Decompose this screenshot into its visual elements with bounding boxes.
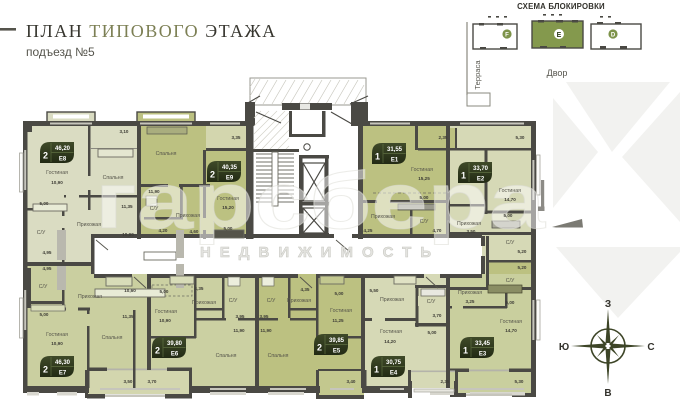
svg-text:5,00: 5,00: [335, 291, 344, 296]
svg-text:3,70: 3,70: [433, 313, 442, 318]
svg-text:2,35: 2,35: [441, 379, 450, 384]
svg-text:39,85: 39,85: [329, 338, 345, 344]
svg-text:Прихожая: Прихожая: [287, 298, 311, 304]
svg-text:D: D: [611, 33, 616, 39]
svg-text:Двор: Двор: [547, 68, 568, 78]
svg-text:Гостиная: Гостиная: [46, 332, 68, 338]
svg-text:5,20: 5,20: [518, 249, 527, 254]
svg-text:С/У: С/У: [427, 299, 436, 305]
svg-text:Прихожая: Прихожая: [78, 294, 102, 300]
svg-text:14,20: 14,20: [384, 339, 396, 344]
svg-text:Терраса: Терраса: [473, 60, 482, 90]
svg-text:Е1: Е1: [391, 158, 399, 164]
svg-text:Е3: Е3: [479, 352, 487, 358]
svg-text:Е9: Е9: [226, 176, 234, 182]
svg-text:15,20: 15,20: [222, 205, 234, 210]
svg-text:Гостиная: Гостиная: [499, 188, 521, 194]
svg-text:5,00: 5,00: [224, 226, 233, 231]
svg-text:Е5: Е5: [333, 349, 341, 355]
svg-text:5,00: 5,00: [428, 330, 437, 335]
svg-text:3,95: 3,95: [260, 314, 269, 319]
svg-text:Гостиная: Гостиная: [380, 329, 402, 335]
svg-text:ПЛАН ТИПОВОГО ЭТАЖА: ПЛАН ТИПОВОГО ЭТАЖА: [26, 21, 277, 41]
svg-text:2: 2: [43, 365, 48, 375]
svg-text:11,90: 11,90: [148, 189, 160, 194]
svg-text:С/У: С/У: [267, 298, 276, 304]
svg-text:3,50: 3,50: [467, 229, 476, 234]
svg-text:46,20: 46,20: [55, 146, 71, 152]
svg-text:4,70: 4,70: [433, 228, 442, 233]
svg-text:2: 2: [43, 151, 48, 161]
svg-text:46,30: 46,30: [55, 360, 71, 366]
svg-text:Прихожая: Прихожая: [457, 221, 481, 227]
svg-text:4,20: 4,20: [159, 228, 168, 233]
svg-text:30,75: 30,75: [386, 360, 402, 366]
svg-text:3,40: 3,40: [347, 379, 356, 384]
svg-text:Е8: Е8: [59, 157, 67, 163]
svg-text:3,25: 3,25: [466, 299, 475, 304]
svg-text:F: F: [505, 33, 509, 39]
svg-text:1: 1: [375, 152, 380, 162]
svg-text:Е6: Е6: [171, 352, 179, 358]
svg-text:3,70: 3,70: [148, 379, 157, 384]
svg-text:1: 1: [374, 365, 379, 375]
svg-text:31,55: 31,55: [387, 147, 403, 153]
svg-text:5,20: 5,20: [518, 265, 527, 270]
svg-text:4,60: 4,60: [190, 229, 199, 234]
svg-text:11,90: 11,90: [233, 328, 245, 333]
svg-text:10,60: 10,60: [124, 288, 136, 293]
svg-text:В: В: [604, 388, 611, 399]
svg-text:Прихожая: Прихожая: [458, 290, 482, 296]
svg-text:4,35: 4,35: [301, 287, 310, 292]
svg-text:Е4: Е4: [390, 371, 398, 377]
svg-text:З: З: [605, 299, 611, 310]
svg-text:5,30: 5,30: [516, 135, 525, 140]
svg-text:5,00: 5,00: [506, 300, 515, 305]
svg-text:Гостиная: Гостиная: [217, 196, 239, 202]
svg-text:4,35: 4,35: [195, 286, 204, 291]
svg-text:3,35: 3,35: [232, 135, 241, 140]
svg-text:2: 2: [155, 346, 160, 356]
svg-text:Ю: Ю: [559, 342, 569, 353]
svg-text:Гостиная: Гостиная: [330, 308, 352, 314]
svg-text:2,35: 2,35: [439, 135, 448, 140]
svg-text:подъезд №5: подъезд №5: [26, 45, 95, 59]
svg-text:Е2: Е2: [477, 177, 485, 183]
svg-text:Прихожая: Прихожая: [192, 300, 216, 306]
svg-text:Е: Е: [557, 32, 562, 39]
svg-text:Прихожая: Прихожая: [371, 214, 395, 220]
svg-text:33,45: 33,45: [475, 341, 491, 347]
svg-text:Гостиная: Гостиная: [155, 309, 177, 315]
svg-text:2: 2: [317, 343, 322, 353]
svg-text:Гостиная: Гостиная: [46, 170, 68, 176]
svg-text:Е7: Е7: [59, 371, 67, 377]
svg-text:4,95: 4,95: [43, 266, 52, 271]
svg-text:39,80: 39,80: [167, 341, 183, 347]
svg-text:Гостиная: Гостиная: [411, 167, 433, 173]
svg-text:14,70: 14,70: [505, 328, 517, 333]
svg-text:3,95: 3,95: [236, 314, 245, 319]
svg-text:С/У: С/У: [506, 278, 515, 284]
svg-text:СХЕМА БЛОКИРОВКИ: СХЕМА БЛОКИРОВКИ: [517, 2, 605, 11]
svg-text:С/У: С/У: [420, 219, 429, 225]
svg-text:2: 2: [210, 170, 215, 180]
svg-text:5,00: 5,00: [40, 201, 49, 206]
svg-text:4,95: 4,95: [43, 250, 52, 255]
svg-text:5,00: 5,00: [40, 312, 49, 317]
svg-text:10,90: 10,90: [122, 232, 134, 237]
svg-text:10,90: 10,90: [51, 180, 63, 185]
svg-text:11,35: 11,35: [122, 314, 134, 319]
svg-text:Гостиная: Гостиная: [500, 319, 522, 325]
svg-text:Прихожая: Прихожая: [77, 222, 101, 228]
svg-text:5,50: 5,50: [370, 288, 379, 293]
svg-text:33,70: 33,70: [473, 166, 489, 172]
svg-text:5,00: 5,00: [160, 289, 169, 294]
svg-text:1: 1: [463, 346, 468, 356]
svg-text:1: 1: [461, 171, 466, 181]
svg-text:15,25: 15,25: [418, 176, 430, 181]
svg-text:С/У: С/У: [37, 230, 46, 236]
svg-text:Спальня: Спальня: [156, 151, 177, 157]
svg-text:5,00: 5,00: [420, 195, 429, 200]
svg-text:С: С: [647, 342, 654, 353]
svg-text:11,35: 11,35: [121, 204, 133, 209]
svg-text:5,00: 5,00: [504, 213, 513, 218]
svg-text:3,10: 3,10: [120, 129, 129, 134]
svg-text:10,90: 10,90: [51, 341, 63, 346]
svg-text:С/У: С/У: [506, 240, 515, 246]
svg-text:Спальня: Спальня: [268, 353, 289, 359]
svg-text:Спальня: Спальня: [216, 353, 237, 359]
svg-text:40,35: 40,35: [222, 165, 238, 171]
svg-text:Спальня: Спальня: [102, 335, 123, 341]
svg-text:С/У: С/У: [150, 206, 159, 212]
svg-text:14,70: 14,70: [504, 197, 516, 202]
svg-text:С/У: С/У: [229, 298, 238, 304]
svg-text:11,90: 11,90: [260, 328, 272, 333]
svg-text:3,50: 3,50: [124, 379, 133, 384]
svg-text:Спальня: Спальня: [103, 175, 124, 181]
svg-text:10,90: 10,90: [159, 318, 171, 323]
svg-text:4,25: 4,25: [364, 228, 373, 233]
svg-text:Прихожая: Прихожая: [176, 213, 200, 219]
svg-text:11,25: 11,25: [332, 318, 344, 323]
svg-text:5,30: 5,30: [515, 379, 524, 384]
svg-text:Прихожая: Прихожая: [380, 297, 404, 303]
svg-text:С/У: С/У: [39, 284, 48, 290]
svg-text:НЕДВИЖИМОСТЬ: НЕДВИЖИМОСТЬ: [200, 244, 440, 261]
